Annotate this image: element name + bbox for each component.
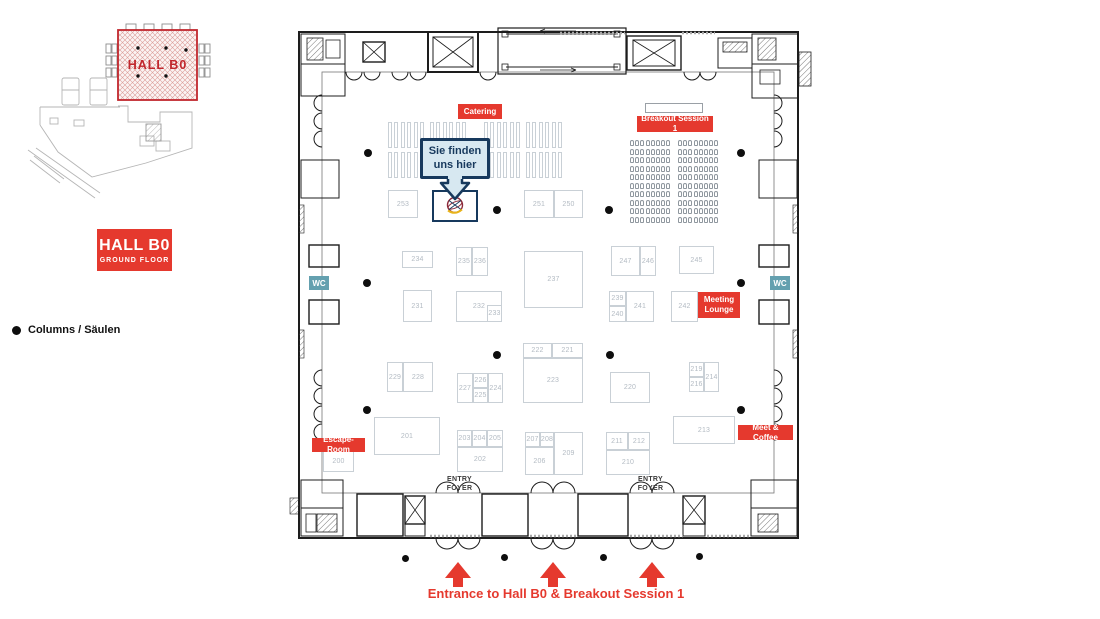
catering-table <box>510 152 514 178</box>
booth-number: 222 <box>531 347 543 354</box>
booth-number: 208 <box>541 436 553 443</box>
breakout-chair <box>714 183 718 189</box>
area-label-escape-room: Escape-Room <box>312 438 365 452</box>
entrance-arrow-icon <box>445 562 471 587</box>
booth-number: 213 <box>698 427 710 434</box>
breakout-chair <box>635 200 639 206</box>
overview-map <box>0 0 260 215</box>
breakout-chair <box>651 149 655 155</box>
booth-number: 245 <box>690 257 702 264</box>
catering-table <box>414 122 418 148</box>
booth-number: 236 <box>474 258 486 265</box>
booth-204: 204 <box>472 430 487 447</box>
catering-table <box>510 122 514 148</box>
booth-237: 237 <box>524 251 583 308</box>
breakout-chair <box>688 157 692 163</box>
booth-231: 231 <box>403 290 432 322</box>
breakout-chair <box>704 140 708 146</box>
entry-foyer-line2: FOYER <box>628 484 673 493</box>
catering-table <box>532 122 536 148</box>
breakout-chair <box>666 157 670 163</box>
breakout-chair <box>699 174 703 180</box>
breakout-chair <box>699 217 703 223</box>
breakout-chair <box>688 200 692 206</box>
breakout-chair <box>651 217 655 223</box>
catering-table <box>558 152 562 178</box>
breakout-chair <box>651 166 655 172</box>
breakout-chair <box>683 149 687 155</box>
breakout-chair <box>656 183 660 189</box>
breakout-chair <box>699 191 703 197</box>
breakout-chair <box>630 183 634 189</box>
breakout-chair <box>678 166 682 172</box>
area-label-breakout-session-1: Breakout Session 1 <box>637 116 713 132</box>
booth-number: 204 <box>473 435 485 442</box>
breakout-chair <box>630 200 634 206</box>
breakout-chair <box>709 208 713 214</box>
booth-208: 208 <box>540 432 554 447</box>
catering-table <box>414 152 418 178</box>
catering-table <box>516 122 520 148</box>
breakout-chair <box>704 183 708 189</box>
breakout-chair <box>661 174 665 180</box>
breakout-chair <box>640 183 644 189</box>
entry-foyer-line1: ENTRY <box>437 475 482 484</box>
booth-227: 227 <box>457 373 473 403</box>
breakout-chair <box>630 157 634 163</box>
legend-columns: Columns / Säulen <box>12 324 120 336</box>
booth-246: 246 <box>640 246 656 276</box>
breakout-chair <box>640 208 644 214</box>
breakout-chair <box>699 200 703 206</box>
breakout-chair <box>694 200 698 206</box>
booth-236: 236 <box>472 247 488 276</box>
booth-212: 212 <box>628 432 650 450</box>
booth-203: 203 <box>457 430 472 447</box>
breakout-chair <box>678 157 682 163</box>
breakout-chair <box>630 166 634 172</box>
breakout-chair <box>656 149 660 155</box>
booth-233: 233 <box>487 305 502 322</box>
breakout-chair <box>714 217 718 223</box>
breakout-chair <box>694 208 698 214</box>
catering-table <box>407 122 411 148</box>
breakout-chair <box>656 166 660 172</box>
column-dot <box>363 406 371 414</box>
booth-228: 228 <box>403 362 433 392</box>
breakout-chair <box>656 208 660 214</box>
breakout-chair <box>635 149 639 155</box>
booth-234: 234 <box>402 251 433 268</box>
booth-number: 242 <box>678 303 690 310</box>
hall-badge: HALL B0 GROUND FLOOR <box>97 229 172 271</box>
booth-239: 239 <box>609 291 626 306</box>
breakout-chair <box>646 183 650 189</box>
breakout-chair <box>630 217 634 223</box>
booth-number: 235 <box>458 258 470 265</box>
booth-number: 226 <box>474 377 486 384</box>
booth-number: 200 <box>332 458 344 465</box>
breakout-chair <box>709 191 713 197</box>
breakout-chair <box>683 157 687 163</box>
booth-number: 207 <box>526 436 538 443</box>
breakout-chair <box>704 191 708 197</box>
breakout-chair <box>640 157 644 163</box>
breakout-chair <box>651 183 655 189</box>
column-dot <box>737 149 745 157</box>
booth-229: 229 <box>387 362 403 392</box>
wc-label-left: WC <box>309 276 329 290</box>
column-dot <box>605 206 613 214</box>
catering-table <box>388 152 392 178</box>
entry-foyer-label-left: ENTRY FOYER <box>437 475 482 493</box>
column-dot <box>402 555 409 562</box>
breakout-chair <box>666 200 670 206</box>
wc-label-right: WC <box>770 276 790 290</box>
breakout-stage <box>645 103 703 113</box>
booth-number: 216 <box>690 381 702 388</box>
booth-224: 224 <box>488 373 503 403</box>
breakout-chair <box>704 157 708 163</box>
breakout-chair <box>709 149 713 155</box>
booth-number: 205 <box>489 435 501 442</box>
entrance-arrow-icon <box>639 562 665 587</box>
breakout-chair <box>646 208 650 214</box>
column-dot-legend-icon <box>12 326 21 335</box>
entrance-arrows <box>0 0 1100 619</box>
booth-number: 234 <box>411 256 423 263</box>
booth-number: 202 <box>474 456 486 463</box>
breakout-chair <box>688 183 692 189</box>
breakout-chair <box>688 217 692 223</box>
hall-badge-subtitle: GROUND FLOOR <box>100 257 170 264</box>
breakout-chair <box>678 183 682 189</box>
breakout-chair <box>694 140 698 146</box>
breakout-chair <box>709 157 713 163</box>
booth-242: 242 <box>671 291 698 322</box>
breakout-chair <box>694 166 698 172</box>
booth-222: 222 <box>523 343 552 358</box>
booth-251: 251 <box>524 190 554 218</box>
breakout-chair <box>656 191 660 197</box>
booth-210: 210 <box>606 450 650 475</box>
booth-250: 250 <box>554 190 583 218</box>
breakout-chair <box>688 166 692 172</box>
catering-table <box>532 152 536 178</box>
breakout-chair <box>661 140 665 146</box>
booth-206: 206 <box>525 447 554 475</box>
breakout-chair <box>709 140 713 146</box>
breakout-chair <box>709 217 713 223</box>
breakout-chair <box>709 183 713 189</box>
breakout-chair <box>666 149 670 155</box>
booth-245: 245 <box>679 246 714 274</box>
column-dot <box>501 554 508 561</box>
booth-209: 209 <box>554 432 583 475</box>
breakout-chair <box>709 166 713 172</box>
breakout-chair <box>630 174 634 180</box>
breakout-chair <box>656 200 660 206</box>
column-dot <box>363 279 371 287</box>
breakout-chair <box>640 149 644 155</box>
legend-columns-label: Columns / Säulen <box>28 324 120 336</box>
booth-240: 240 <box>609 306 626 322</box>
breakout-chair <box>646 149 650 155</box>
breakout-chair <box>640 217 644 223</box>
breakout-chair <box>666 140 670 146</box>
catering-table <box>545 152 549 178</box>
booth-219: 219 <box>689 362 704 377</box>
catering-table <box>407 152 411 178</box>
catering-table <box>539 152 543 178</box>
breakout-chair <box>635 183 639 189</box>
booth-number: 232 <box>473 303 485 310</box>
breakout-chair <box>678 191 682 197</box>
breakout-chair <box>656 174 660 180</box>
breakout-chair <box>683 200 687 206</box>
catering-table <box>394 122 398 148</box>
booth-241: 241 <box>626 291 654 322</box>
catering-table <box>388 122 392 148</box>
catering-table <box>558 122 562 148</box>
breakout-chair <box>683 183 687 189</box>
breakout-chair <box>709 200 713 206</box>
breakout-chair <box>666 183 670 189</box>
breakout-chair <box>678 208 682 214</box>
breakout-chair <box>688 191 692 197</box>
breakout-chair <box>704 166 708 172</box>
catering-table <box>552 122 556 148</box>
area-label-meeting-lounge: Meeting Lounge <box>698 292 740 318</box>
breakout-chair <box>630 149 634 155</box>
breakout-chair <box>635 208 639 214</box>
breakout-chair <box>656 140 660 146</box>
booth-216: 216 <box>689 377 704 392</box>
breakout-chair <box>635 166 639 172</box>
booth-number: 224 <box>489 385 501 392</box>
breakout-chair <box>661 157 665 163</box>
booth-number: 247 <box>619 258 631 265</box>
breakout-chair <box>699 149 703 155</box>
booth-number: 227 <box>459 385 471 392</box>
breakout-chair <box>699 166 703 172</box>
breakout-chair <box>683 191 687 197</box>
breakout-chair <box>683 174 687 180</box>
breakout-chair <box>661 149 665 155</box>
breakout-chair <box>714 157 718 163</box>
breakout-chair <box>666 191 670 197</box>
overview-hall-label: HALL B0 <box>118 58 197 72</box>
breakout-chair <box>656 217 660 223</box>
breakout-chair <box>635 217 639 223</box>
breakout-chair <box>694 174 698 180</box>
booth-202: 202 <box>457 447 503 472</box>
breakout-chair <box>640 140 644 146</box>
breakout-chair <box>714 174 718 180</box>
booth-211: 211 <box>606 432 628 450</box>
breakout-chair <box>704 208 708 214</box>
breakout-chair <box>714 200 718 206</box>
column-dot <box>737 279 745 287</box>
entry-foyer-label-right: ENTRY FOYER <box>628 475 673 493</box>
breakout-chair <box>694 191 698 197</box>
breakout-chair <box>661 208 665 214</box>
breakout-chair <box>656 157 660 163</box>
booth-207: 207 <box>525 432 540 447</box>
breakout-chair <box>635 140 639 146</box>
booth-number: 206 <box>533 458 545 465</box>
catering-table <box>503 152 507 178</box>
catering-table <box>539 122 543 148</box>
breakout-chair <box>714 149 718 155</box>
column-dot <box>493 351 501 359</box>
catering-table <box>526 122 530 148</box>
breakout-chair <box>694 183 698 189</box>
site-sketch <box>28 24 210 198</box>
catering-table <box>401 152 405 178</box>
breakout-chair <box>666 217 670 223</box>
booth-number: 240 <box>611 311 623 318</box>
callout-you-are-here: Sie finden uns hier <box>420 138 490 179</box>
column-dot <box>606 351 614 359</box>
breakout-chair <box>688 140 692 146</box>
catering-table <box>526 152 530 178</box>
breakout-chair <box>666 166 670 172</box>
booth-number: 219 <box>690 366 702 373</box>
breakout-chair <box>651 191 655 197</box>
breakout-chair <box>694 157 698 163</box>
catering-table <box>401 122 405 148</box>
breakout-chair <box>646 157 650 163</box>
breakout-chair <box>699 183 703 189</box>
column-dot <box>493 206 501 214</box>
booth-253: 253 <box>388 190 418 218</box>
hall-badge-title: HALL B0 <box>99 237 170 255</box>
breakout-chair <box>709 174 713 180</box>
breakout-chair <box>640 200 644 206</box>
breakout-chair <box>678 140 682 146</box>
breakout-chair <box>630 191 634 197</box>
column-dot <box>600 554 607 561</box>
breakout-chair <box>635 191 639 197</box>
catering-table <box>545 122 549 148</box>
breakout-chair <box>646 166 650 172</box>
breakout-chair <box>688 174 692 180</box>
booth-number: 251 <box>533 201 545 208</box>
booth-number: 203 <box>458 435 470 442</box>
booth-225: 225 <box>473 388 488 403</box>
breakout-chair <box>683 208 687 214</box>
booth-number: 220 <box>624 384 636 391</box>
breakout-chair <box>661 217 665 223</box>
breakout-chair <box>683 140 687 146</box>
booth-number: 241 <box>634 303 646 310</box>
catering-table <box>516 152 520 178</box>
booth-number: 246 <box>642 258 654 265</box>
booth-223: 223 <box>523 358 583 403</box>
catering-table <box>552 152 556 178</box>
breakout-chair <box>683 217 687 223</box>
booth-number: 229 <box>389 374 401 381</box>
breakout-chair <box>688 208 692 214</box>
breakout-chair <box>704 174 708 180</box>
entrance-arrow-icon <box>540 562 566 587</box>
catering-table <box>497 122 501 148</box>
breakout-chair <box>646 191 650 197</box>
breakout-chair <box>646 200 650 206</box>
breakout-chair <box>651 208 655 214</box>
breakout-chair <box>646 140 650 146</box>
breakout-chair <box>640 174 644 180</box>
building-structure <box>0 0 1100 619</box>
callout-line2: uns hier <box>434 159 477 173</box>
breakout-chair <box>635 174 639 180</box>
floor-plan-page: HALL B0 HALL B0 GROUND FLOOR Columns / S… <box>0 0 1100 619</box>
breakout-chair <box>694 217 698 223</box>
breakout-chair <box>651 174 655 180</box>
breakout-chair <box>630 140 634 146</box>
breakout-chair <box>704 149 708 155</box>
breakout-chair <box>688 149 692 155</box>
booth-number: 237 <box>547 276 559 283</box>
booth-226: 226 <box>473 373 488 388</box>
breakout-chair <box>640 166 644 172</box>
callout-pointer-icon <box>437 176 473 202</box>
booth-number: 228 <box>412 374 424 381</box>
breakout-chair <box>714 191 718 197</box>
breakout-chair <box>678 217 682 223</box>
booth-213: 213 <box>673 416 735 444</box>
breakout-chair <box>666 174 670 180</box>
breakout-chair <box>683 166 687 172</box>
breakout-chair <box>661 183 665 189</box>
breakout-chair <box>699 140 703 146</box>
breakout-chair <box>651 140 655 146</box>
area-label-meet-and-coffee: Meet & Coffee <box>738 425 793 440</box>
booth-205: 205 <box>487 430 503 447</box>
booth-221: 221 <box>552 343 583 358</box>
area-label-catering: Catering <box>458 104 502 119</box>
breakout-chair <box>704 217 708 223</box>
booth-235: 235 <box>456 247 472 276</box>
catering-table <box>490 152 494 178</box>
booth-247: 247 <box>611 246 640 276</box>
breakout-chair <box>704 200 708 206</box>
booth-214: 214 <box>704 362 719 392</box>
column-dot <box>696 553 703 560</box>
entry-foyer-line1: ENTRY <box>628 475 673 484</box>
catering-table <box>503 122 507 148</box>
breakout-chair <box>699 157 703 163</box>
booth-number: 214 <box>705 374 717 381</box>
breakout-chair <box>678 149 682 155</box>
breakout-chair <box>714 166 718 172</box>
booth-number: 239 <box>611 295 623 302</box>
breakout-chair <box>694 149 698 155</box>
column-dot <box>737 406 745 414</box>
catering-table <box>497 152 501 178</box>
breakout-chair <box>646 174 650 180</box>
booth-number: 223 <box>547 377 559 384</box>
breakout-chair <box>678 174 682 180</box>
booth-220: 220 <box>610 372 650 403</box>
booth-number: 233 <box>488 310 500 317</box>
column-dot <box>364 149 372 157</box>
breakout-chair <box>646 217 650 223</box>
entry-foyer-line2: FOYER <box>437 484 482 493</box>
booth-number: 210 <box>622 459 634 466</box>
breakout-chair <box>714 140 718 146</box>
